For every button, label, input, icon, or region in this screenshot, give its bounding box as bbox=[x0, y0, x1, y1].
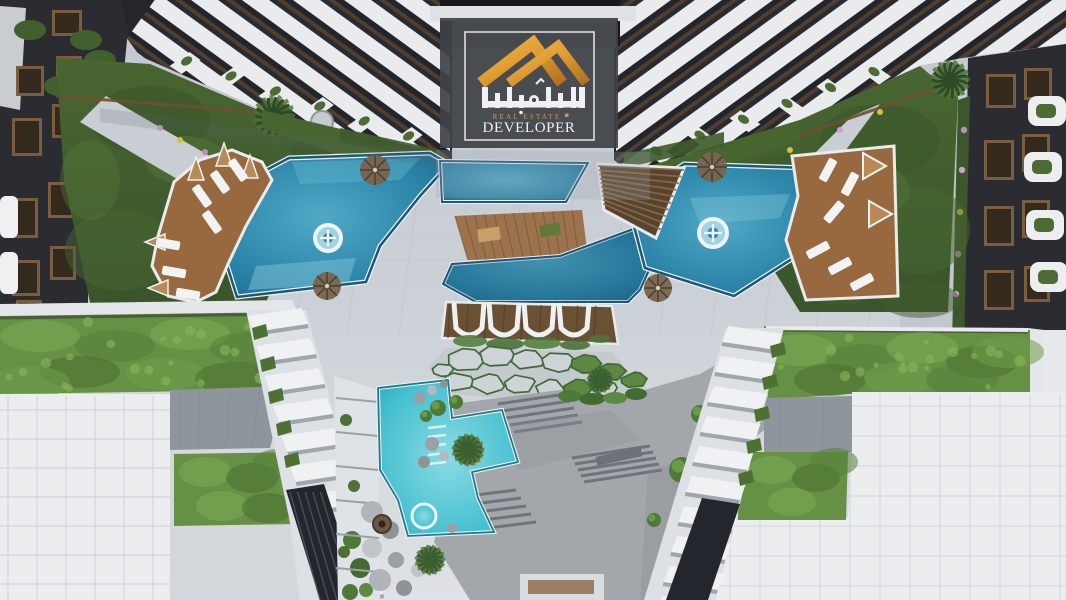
svg-text:DEVELOPER: DEVELOPER bbox=[483, 120, 576, 136]
